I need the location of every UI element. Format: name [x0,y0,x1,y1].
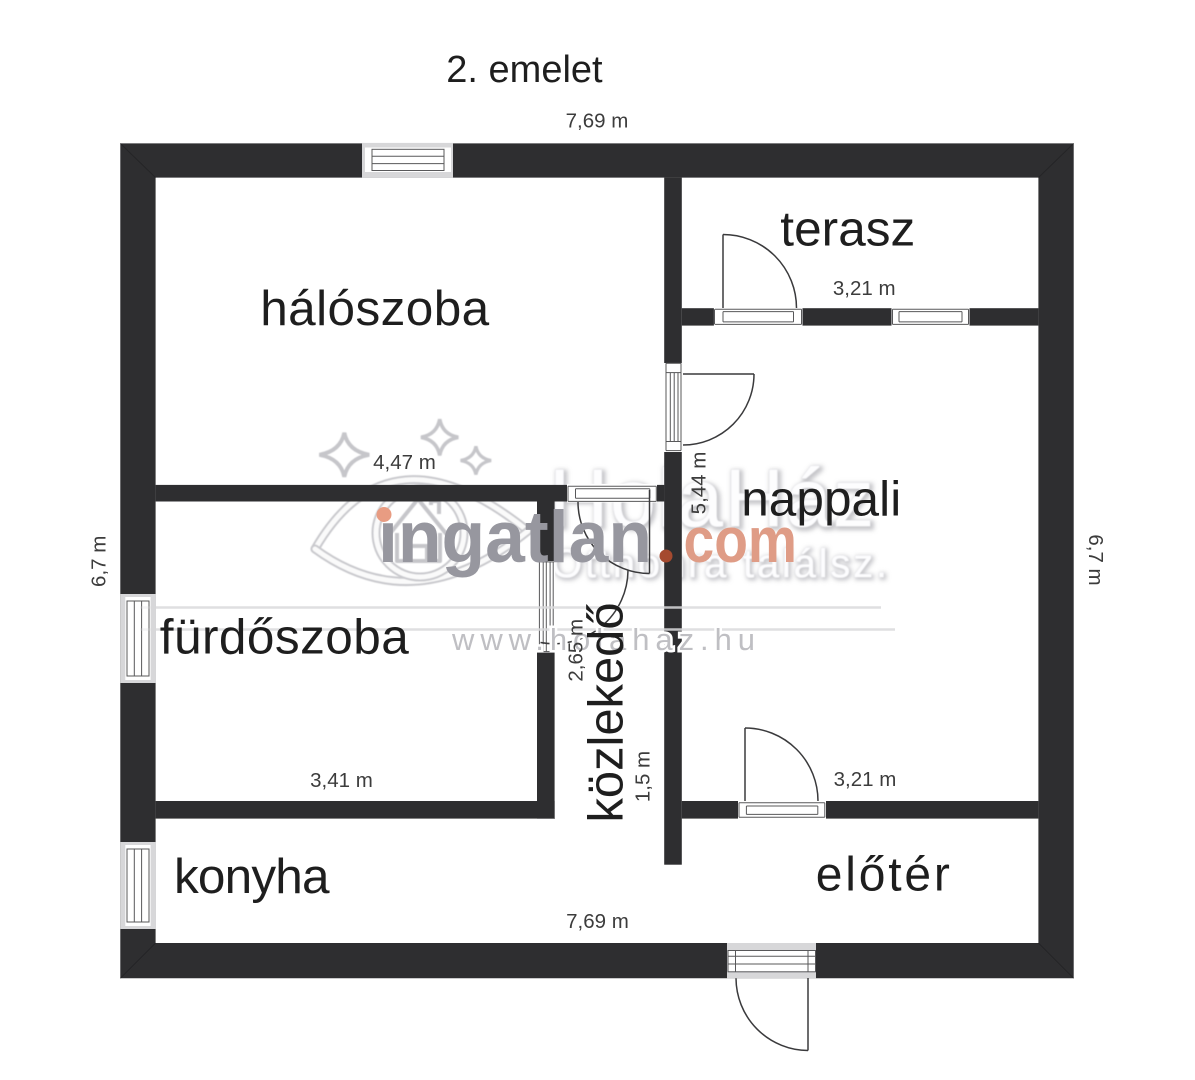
svg-text:7,69 m: 7,69 m [566,910,629,933]
svg-text:7,69 m: 7,69 m [566,110,629,133]
svg-text:3,41 m: 3,41 m [310,769,373,792]
svg-text:terasz: terasz [780,201,915,256]
svg-text:hálószoba: hálószoba [260,281,489,336]
svg-text:fürdőszoba: fürdőszoba [160,610,409,665]
svg-text:1,5 m: 1,5 m [632,751,655,802]
svg-text:6,7 m: 6,7 m [88,536,111,587]
svg-text:5,44 m: 5,44 m [688,452,711,515]
svg-text:konyha: konyha [174,849,330,904]
svg-text:2,65 m: 2,65 m [565,619,588,682]
svg-text:2. emelet: 2. emelet [446,49,603,91]
svg-text:4,47 m: 4,47 m [373,451,436,474]
svg-text:6,7 m: 6,7 m [1084,534,1107,585]
svg-text:ıngatlan: ıngatlan [378,497,652,578]
svg-text:3,21 m: 3,21 m [833,277,896,300]
svg-text:nappali: nappali [741,471,901,526]
svg-text:előtér: előtér [816,849,950,902]
svg-text:3,21 m: 3,21 m [834,768,897,791]
